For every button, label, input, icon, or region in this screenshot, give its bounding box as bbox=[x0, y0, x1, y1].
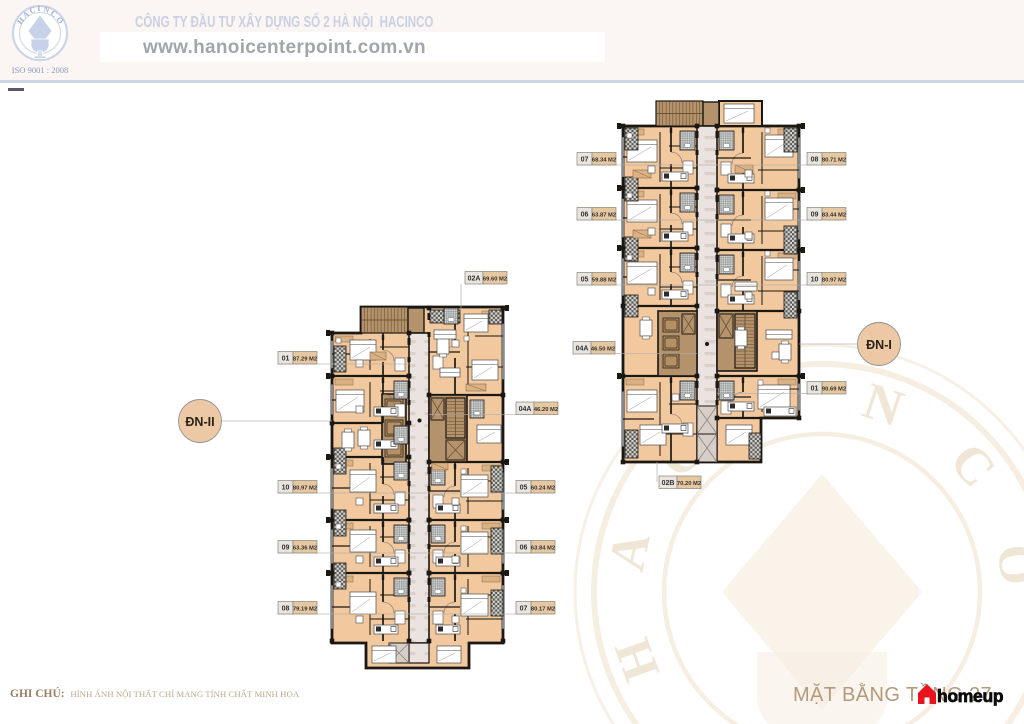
svg-text:80.17 M2: 80.17 M2 bbox=[531, 607, 555, 613]
svg-text:59.88 M2: 59.88 M2 bbox=[592, 278, 616, 284]
svg-text:08: 08 bbox=[282, 606, 290, 613]
svg-text:N: N bbox=[856, 372, 909, 438]
svg-text:46.20 M2: 46.20 M2 bbox=[534, 407, 558, 413]
svg-text:ĐN-I: ĐN-I bbox=[866, 338, 892, 352]
svg-text:09: 09 bbox=[811, 212, 819, 219]
svg-text:46.50 M2: 46.50 M2 bbox=[591, 347, 615, 353]
svg-text:01: 01 bbox=[282, 356, 290, 363]
svg-text:A: A bbox=[598, 527, 662, 576]
svg-text:H: H bbox=[604, 631, 671, 689]
svg-text:05: 05 bbox=[520, 485, 528, 492]
svg-text:80.71 M2: 80.71 M2 bbox=[822, 158, 846, 164]
svg-text:63.87 M2: 63.87 M2 bbox=[592, 213, 616, 219]
svg-text:05: 05 bbox=[581, 277, 589, 284]
svg-text:06: 06 bbox=[520, 545, 528, 552]
svg-text:01: 01 bbox=[811, 386, 819, 393]
svg-text:09: 09 bbox=[282, 545, 290, 552]
svg-text:80.97 M2: 80.97 M2 bbox=[293, 486, 317, 492]
svg-text:63.84 M2: 63.84 M2 bbox=[531, 546, 555, 552]
svg-text:02A: 02A bbox=[468, 276, 481, 283]
svg-text:80.97 M2: 80.97 M2 bbox=[822, 278, 846, 284]
svg-text:07: 07 bbox=[520, 606, 528, 613]
svg-text:O: O bbox=[985, 541, 1024, 589]
svg-text:04A: 04A bbox=[519, 406, 532, 413]
svg-text:79.19 M2: 79.19 M2 bbox=[293, 607, 317, 613]
svg-text:07: 07 bbox=[581, 157, 589, 164]
svg-text:ĐN-II: ĐN-II bbox=[185, 415, 214, 429]
svg-text:10: 10 bbox=[811, 277, 819, 284]
svg-text:83.44 M2: 83.44 M2 bbox=[822, 213, 846, 219]
svg-text:06: 06 bbox=[581, 212, 589, 219]
svg-text:10: 10 bbox=[282, 485, 290, 492]
svg-text:homeup: homeup bbox=[937, 686, 1003, 706]
svg-text:60.24 M2: 60.24 M2 bbox=[531, 486, 555, 492]
svg-text:87.29 M2: 87.29 M2 bbox=[293, 357, 317, 363]
svg-text:69.60 M2: 69.60 M2 bbox=[483, 277, 507, 283]
svg-text:70.20 M2: 70.20 M2 bbox=[677, 481, 701, 487]
svg-text:63.36 M2: 63.36 M2 bbox=[293, 546, 317, 552]
svg-text:90.69 M2: 90.69 M2 bbox=[822, 387, 846, 393]
svg-text:02B: 02B bbox=[662, 480, 675, 487]
svg-text:04A: 04A bbox=[576, 346, 589, 353]
svg-text:68.34 M2: 68.34 M2 bbox=[592, 158, 616, 164]
svg-text:08: 08 bbox=[811, 157, 819, 164]
